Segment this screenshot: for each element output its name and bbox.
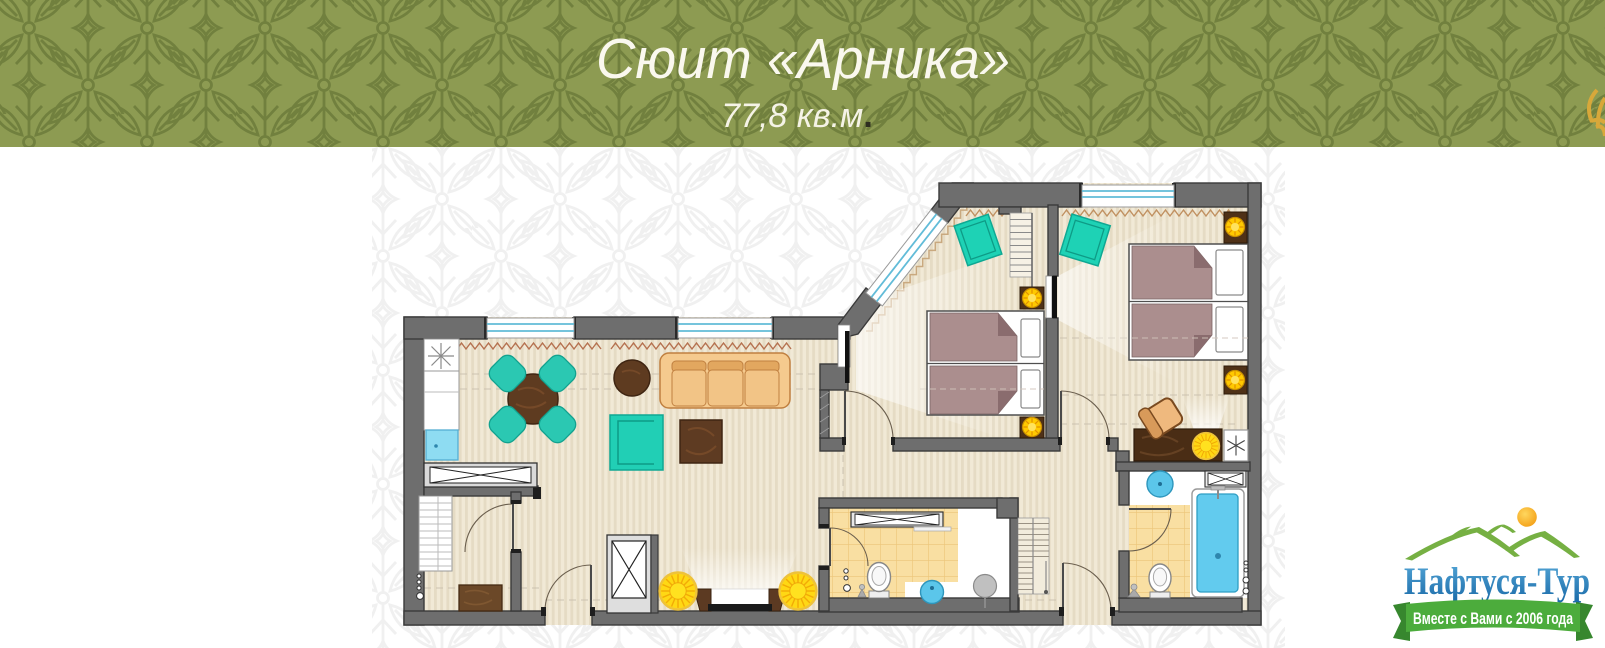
svg-text:Вместе с Вами с 2006 года: Вместе с Вами с 2006 года xyxy=(1413,610,1574,628)
svg-text:Сюит «Арника»: Сюит «Арника» xyxy=(596,27,1010,91)
svg-text:77,8 кв.м.: 77,8 кв.м. xyxy=(721,97,873,135)
svg-text:Нафтуся-Тур: Нафтуся-Тур xyxy=(1404,560,1590,603)
